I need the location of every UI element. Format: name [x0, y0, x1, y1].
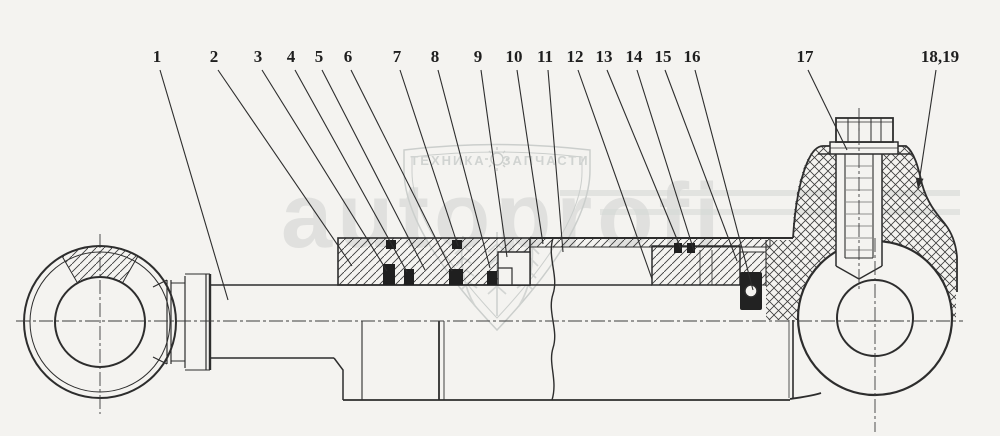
callout-label-4: 4	[287, 47, 296, 66]
callout-label-3: 3	[254, 47, 263, 66]
check-valve-ball	[745, 285, 757, 297]
cylinder-diagram-canvas: autoprofi ТЕХНИКА ЗАПЧАСТИ	[0, 0, 1000, 436]
seal-rod-1	[404, 269, 414, 285]
shield-band-left-text: ТЕХНИКА	[410, 153, 485, 168]
leader-line-1	[160, 70, 228, 300]
callout-label-14: 14	[626, 47, 644, 66]
piston-ring-2	[687, 243, 695, 253]
technical-drawing-page: autoprofi ТЕХНИКА ЗАПЧАСТИ	[0, 0, 1000, 436]
seal-rod-3	[487, 271, 497, 285]
callout-label-2: 2	[210, 47, 219, 66]
gland-assembly	[338, 238, 530, 285]
callout-label-1: 1	[153, 47, 162, 66]
callout-label-10: 10	[506, 47, 523, 66]
seal-rod-2	[449, 269, 463, 285]
callout-label-8: 8	[431, 47, 440, 66]
callout-label-9: 9	[474, 47, 483, 66]
callout-label-15: 15	[655, 47, 672, 66]
shield-band-right-text: ЗАПЧАСТИ	[502, 153, 589, 168]
leader-line-17	[808, 70, 847, 150]
callout-label-7: 7	[393, 47, 402, 66]
exterior-bottom-profile	[334, 321, 821, 400]
callout-label-13: 13	[596, 47, 613, 66]
callout-label-6: 6	[344, 47, 353, 66]
piston-rod	[210, 285, 652, 358]
plug-head	[836, 118, 893, 142]
callout-label-5: 5	[315, 47, 324, 66]
callout-label-18,19: 18,19	[921, 47, 959, 66]
callout-label-12: 12	[567, 47, 584, 66]
cylinder-drawing	[16, 108, 963, 432]
callout-label-17: 17	[797, 47, 815, 66]
leader-line-18,19	[918, 70, 936, 189]
callout-label-16: 16	[684, 47, 701, 66]
callout-label-11: 11	[537, 47, 553, 66]
oring-gland-1	[386, 240, 396, 249]
